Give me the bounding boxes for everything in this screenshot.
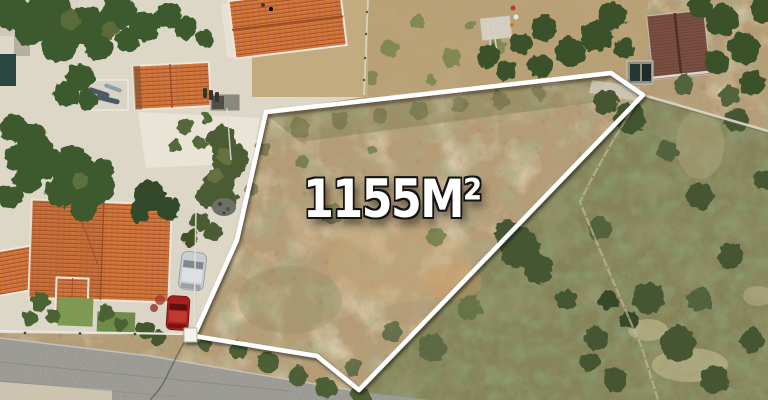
- car-roof: [181, 268, 202, 283]
- aerial-photo-stage: 1155M²: [0, 0, 768, 400]
- car-red: [166, 295, 190, 330]
- fence-post: [366, 11, 368, 13]
- lawn: [58, 297, 94, 326]
- garage-door: [630, 64, 640, 81]
- fence-post: [79, 332, 82, 335]
- orange-object: [510, 23, 514, 27]
- boundary-corner-marker: [184, 328, 197, 342]
- garage-door: [642, 64, 651, 81]
- red-object: [511, 6, 516, 11]
- area-label: 1155M²: [303, 173, 481, 226]
- fence-post: [364, 57, 366, 59]
- fence-post: [24, 332, 27, 335]
- fence-post: [134, 333, 137, 336]
- teal-roof-fragment: [0, 54, 16, 86]
- concrete-slab: [480, 15, 512, 40]
- red-flower-bush: [150, 304, 158, 312]
- red-flower-bush: [155, 295, 165, 305]
- car-cab: [168, 310, 187, 322]
- car-silver: [178, 251, 207, 292]
- small-object: [261, 3, 265, 7]
- car-windshield: [169, 303, 187, 310]
- fence-post: [365, 33, 367, 35]
- white-object: [514, 15, 519, 20]
- rubble-pile: [212, 198, 236, 216]
- pale-ground-patch: [676, 111, 724, 179]
- fence-post: [363, 79, 365, 81]
